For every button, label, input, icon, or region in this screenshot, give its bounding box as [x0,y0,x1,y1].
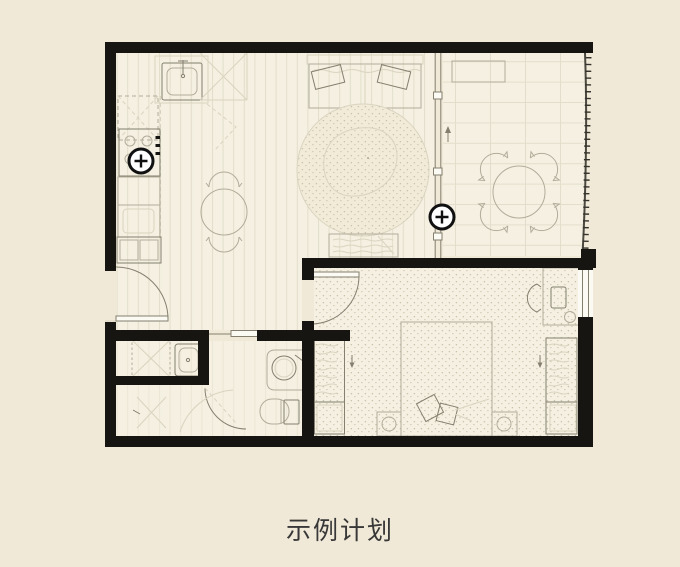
sliding-door-bathroom [207,331,258,337]
plus-marker-partition[interactable] [430,205,454,229]
round-rug [297,104,429,236]
wall-bedroom-door-stub [302,258,314,280]
bedroom-carpet [314,268,578,436]
floor-plan [0,0,680,567]
wall-top [105,42,593,53]
study-room-tiles [443,53,585,256]
bedroom-window [578,270,593,317]
plan-caption: 示例计划 [0,511,680,547]
wall-laundry-top [105,330,209,341]
wall-bottom [105,436,593,447]
wall-middle [307,258,596,268]
wall-laundry-right [198,341,209,381]
wall-bathroom-top [257,330,350,341]
wall-corner-right [581,249,596,268]
wall-left-upper [105,42,116,271]
plus-marker-kitchen[interactable] [129,149,153,173]
bathroom-tiling [116,341,303,436]
floor-plan-canvas: 示例计划 [0,0,680,567]
wall-laundry-bottom [105,376,209,385]
